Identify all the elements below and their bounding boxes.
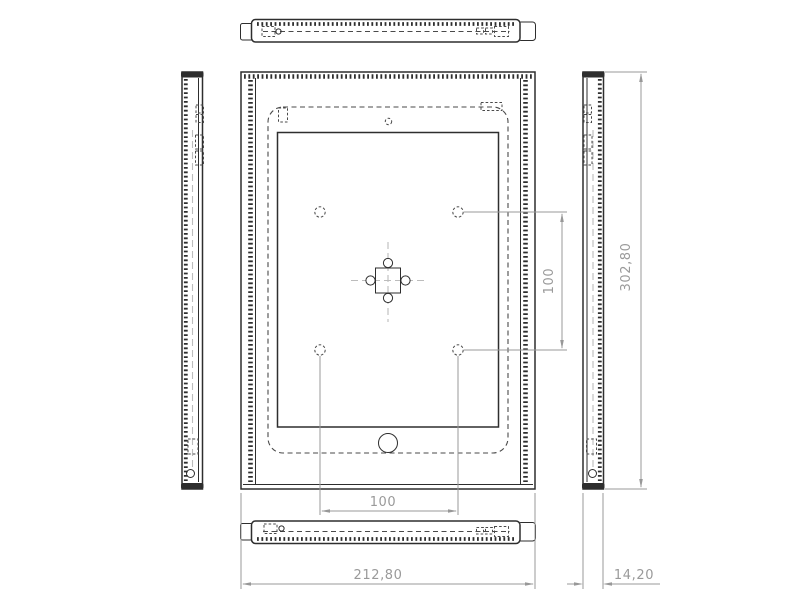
arrowhead-right [448,509,457,513]
arrowhead-down [639,479,643,488]
arrowhead-left [242,582,251,586]
dimension-overall-height: 302,80 [605,72,647,489]
left-side-top-cap [181,72,204,78]
center-screw-hole-left [366,276,375,285]
right-side-top-cap [582,72,605,78]
right-side-view [582,72,605,490]
dimension-label-overall-width: 212,80 [353,568,402,583]
arrowhead-right [574,582,583,586]
arrowhead-down [560,340,564,349]
left-side-bottom-cap [181,483,204,489]
orthographic-drawing: 100 100 302,80 212,80 14,20 [0,0,800,600]
bottom-view [241,521,536,544]
left-side-view [181,72,204,490]
arrowhead-left [603,582,612,586]
dimension-label-vesa-horizontal: 100 [370,495,397,510]
arrowhead-right [525,582,534,586]
center-screw-hole-top [383,258,392,267]
center-screw-hole-right [401,276,410,285]
center-screw-hole-bottom [383,293,392,302]
dimension-depth: 14,20 [567,493,660,589]
dimension-label-overall-height: 302,80 [619,242,634,291]
front-view [241,72,535,489]
dimension-label-depth: 14,20 [614,568,654,583]
top-view [241,20,536,43]
arrowhead-up [639,73,643,82]
technical-drawing-canvas: 100 100 302,80 212,80 14,20 [0,0,800,600]
arrowhead-up [560,213,564,222]
right-side-bottom-cap [582,483,605,489]
arrowhead-left [321,509,330,513]
dimension-label-vesa-vertical: 100 [542,268,557,295]
